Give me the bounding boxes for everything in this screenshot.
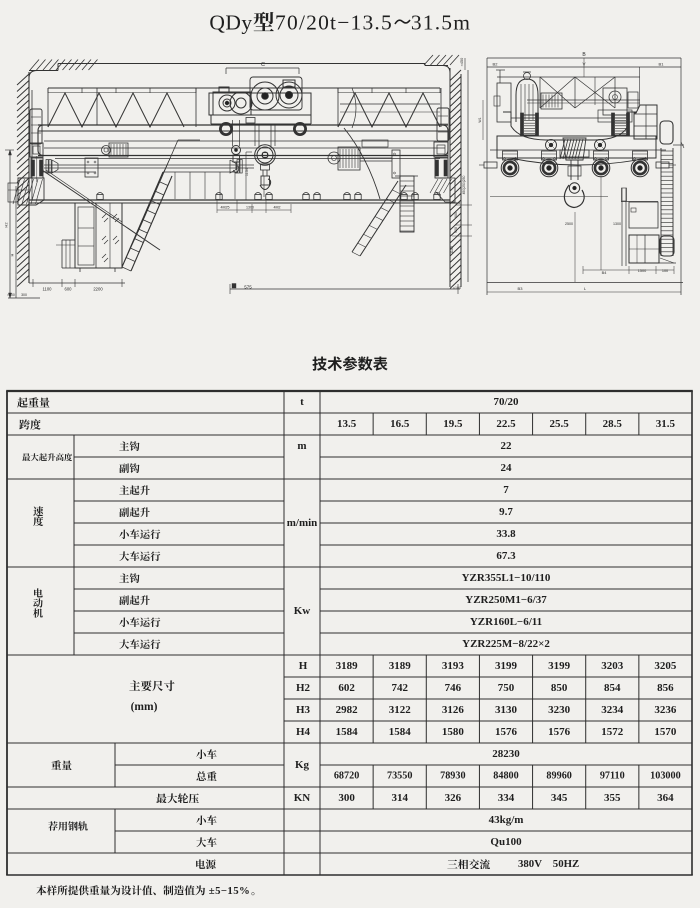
svg-text:600: 600 [65,287,73,292]
svg-text:B3: B3 [518,286,524,291]
svg-text:100: 100 [662,269,668,273]
svg-text:≈450: ≈450 [460,58,464,66]
svg-text:B1: B1 [659,62,665,67]
svg-text:450|250|250: 450|250|250 [462,176,466,195]
svg-text:≈100: ≈100 [453,286,461,290]
svg-text:2500: 2500 [565,222,573,226]
svg-text:W1: W1 [478,117,482,122]
svg-text:H2: H2 [4,222,9,228]
svg-text:575: 575 [244,285,252,290]
svg-text:B: B [582,52,586,58]
svg-text:4M2: 4M2 [274,206,281,210]
svg-text:4M25: 4M25 [221,206,230,210]
svg-text:1154: 1154 [245,168,249,176]
svg-text:1500: 1500 [638,269,646,273]
svg-text:H: H [10,253,15,256]
svg-text:920: 920 [454,227,458,233]
svg-text:B2: B2 [493,62,499,67]
svg-text:L: L [584,286,587,291]
svg-text:1300: 1300 [613,222,621,226]
svg-text:B4: B4 [602,271,607,275]
svg-text:600: 600 [454,212,458,218]
svg-text:1100: 1100 [450,246,454,254]
svg-text:1100: 1100 [42,287,52,292]
svg-text:C: C [261,62,265,68]
svg-text:2200: 2200 [93,287,103,292]
svg-text:1300: 1300 [246,206,254,210]
svg-text:300: 300 [21,293,27,297]
